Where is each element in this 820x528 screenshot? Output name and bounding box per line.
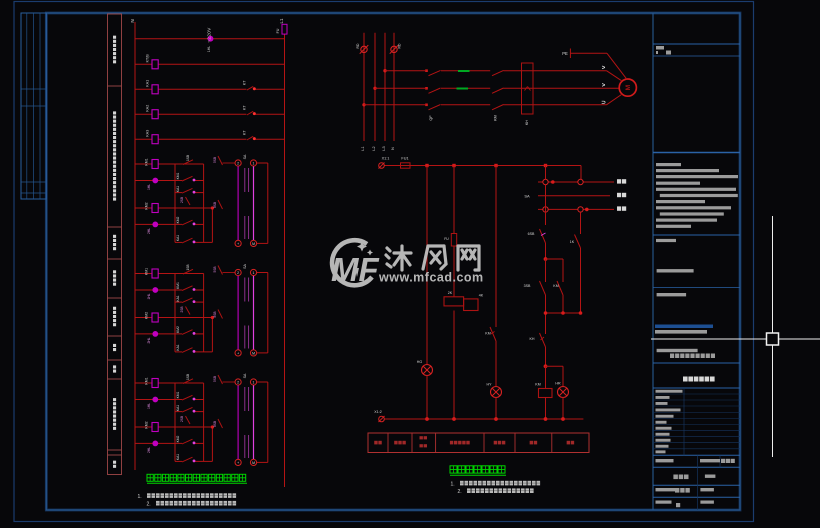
svg-text:1K: 1K [570,240,575,244]
svg-text:L1: L1 [279,18,284,23]
svg-text:>: > [602,83,606,89]
svg-text:+: + [237,461,239,465]
svg-text:1SB: 1SB [186,264,190,270]
svg-text:KH: KH [530,337,535,341]
svg-text:8SB: 8SB [213,311,217,317]
svg-text:N: N [130,19,135,22]
svg-text:HG: HG [417,360,423,364]
svg-text:KM1: KM1 [145,268,149,275]
svg-text:KA1: KA1 [176,186,180,192]
svg-text:2SB: 2SB [180,306,184,312]
svg-text:1: 1 [253,161,255,165]
svg-text:2.: 2. [458,489,462,495]
svg-text:KM2: KM2 [176,435,180,442]
svg-text:KM1: KM1 [145,158,149,165]
svg-text:MF: MF [331,251,379,288]
svg-text:L2: L2 [372,146,376,150]
svg-text:KM: KM [553,284,558,288]
svg-text:KT: KT [243,105,247,110]
svg-text:1HL: 1HL [207,46,211,52]
svg-text:M: M [625,84,632,90]
svg-text:L3: L3 [382,146,386,150]
svg-text:X1:1: X1:1 [382,157,390,161]
svg-text:HY: HY [487,383,493,387]
svg-text:2K: 2K [448,291,453,295]
svg-text:RD: RD [398,43,402,48]
svg-text:1HL: 1HL [147,403,151,409]
svg-text:SA: SA [243,154,247,159]
svg-text:2.: 2. [147,502,151,508]
svg-text:FU: FU [444,237,449,241]
svg-text:KM: KM [485,332,490,336]
svg-text:+: + [237,242,239,246]
svg-text:KT: KT [243,80,247,85]
svg-text:KM2: KM2 [176,216,180,223]
svg-text:~220V: ~220V [207,27,212,43]
svg-text:KT(B: KT(B [146,54,150,63]
svg-text:KM2: KM2 [176,326,180,333]
svg-text:KH: KH [525,120,529,126]
svg-text:2: 2 [237,271,239,275]
svg-text:FU1: FU1 [401,157,408,161]
svg-text:QF: QF [429,115,433,121]
svg-text:⊃: ⊃ [601,100,606,106]
svg-text:1HL: 1HL [147,184,151,190]
svg-text:KA1: KA1 [176,295,180,301]
svg-text:M: M [252,242,255,246]
svg-text:+: + [237,351,239,355]
svg-text:1.: 1. [451,481,455,487]
svg-text:M: M [252,461,255,465]
svg-text:M: M [252,351,255,355]
svg-text:5SB: 5SB [213,376,217,382]
svg-text:X1:2: X1:2 [374,410,381,414]
svg-text:KM1: KM1 [145,377,149,384]
svg-text:6SB: 6SB [528,232,535,236]
svg-text:KA3: KA3 [146,130,150,137]
svg-text:RD: RD [356,43,360,48]
svg-text:KM1: KM1 [176,282,180,289]
svg-text:8SB: 8SB [213,202,217,208]
svg-text:3SB: 3SB [524,284,531,288]
svg-text:4K: 4K [479,294,484,298]
svg-text:KM: KM [535,383,540,387]
svg-text:FU: FU [276,28,280,33]
svg-text:SA: SA [243,264,247,269]
svg-text:PE: PE [562,51,568,56]
svg-text:2SB: 2SB [180,416,184,422]
svg-text:5SB: 5SB [213,157,217,163]
svg-text:KM1: KM1 [176,172,180,179]
svg-text:KA1: KA1 [176,344,180,350]
svg-text:www.mfcad.com: www.mfcad.com [378,271,484,285]
svg-text:L1: L1 [361,146,365,150]
svg-text:1: 1 [253,271,255,275]
svg-text:1SB: 1SB [186,155,190,161]
svg-text:KA1: KA1 [146,80,150,87]
svg-text:8SB: 8SB [213,421,217,427]
svg-text:KM2: KM2 [145,202,149,209]
svg-text:1HL: 1HL [147,293,151,299]
svg-text:1SB: 1SB [186,374,190,380]
svg-text:KT: KT [243,130,247,135]
svg-text:HR: HR [555,382,561,386]
svg-text:>: > [602,66,606,72]
svg-text:KA1: KA1 [176,454,180,460]
svg-text:2HL: 2HL [147,337,151,343]
svg-text:2SB: 2SB [180,197,184,203]
svg-text:2: 2 [237,380,239,384]
svg-text:5SB: 5SB [213,266,217,272]
svg-text:KM2: KM2 [145,421,149,428]
svg-text:KM: KM [494,115,498,121]
svg-text:KA1: KA1 [176,235,180,241]
svg-text:2: 2 [237,161,239,165]
svg-text:KA2: KA2 [146,105,150,112]
svg-text:SA: SA [243,373,247,378]
svg-text:KM1: KM1 [176,391,180,398]
svg-text:KM2: KM2 [145,312,149,319]
svg-text:1: 1 [253,380,255,384]
svg-text:KA1: KA1 [176,405,180,411]
svg-text:2HL: 2HL [147,447,151,453]
svg-text:1.: 1. [138,494,142,500]
svg-text:SA: SA [524,194,530,199]
svg-text:N: N [391,147,395,150]
svg-text:2HL: 2HL [147,228,151,234]
